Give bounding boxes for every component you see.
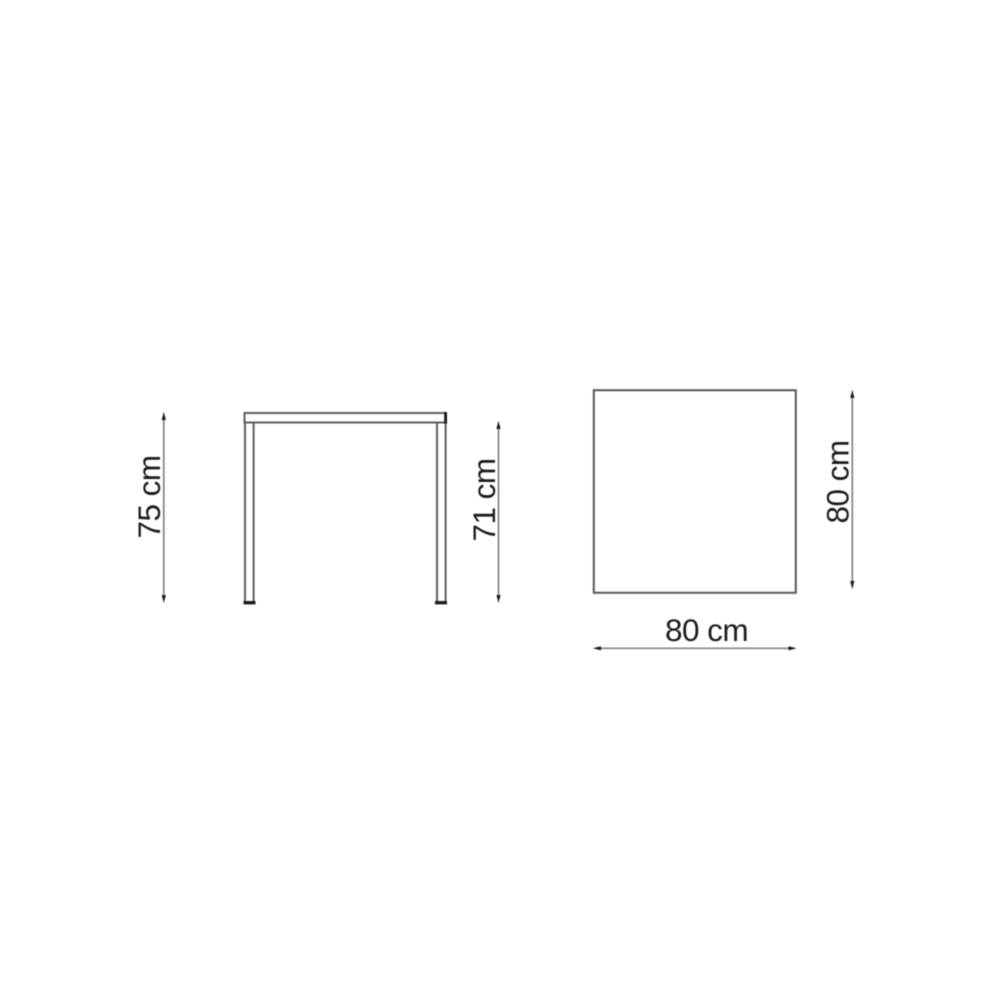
svg-text:80 cm: 80 cm bbox=[820, 440, 856, 523]
svg-text:71 cm: 71 cm bbox=[466, 458, 502, 541]
svg-text:75 cm: 75 cm bbox=[131, 455, 167, 538]
svg-text:80 cm: 80 cm bbox=[665, 612, 748, 648]
